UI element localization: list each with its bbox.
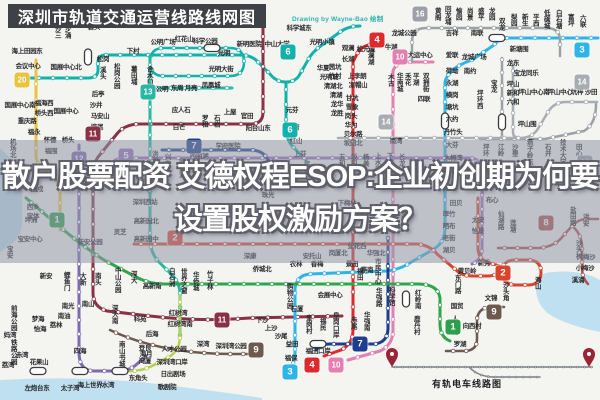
line-badge-3: 3 (283, 365, 298, 380)
line-badge-7: 7 (353, 337, 368, 352)
map-credit: Drawing by Wayne-Bao 绘制 (292, 13, 383, 23)
line-badge-13: 13 (141, 85, 156, 100)
metro-map-screenshot: 海上田园东沙三步涌碧头公明北长春路松岗下村溪头松岗公园薯田埔合水口后亭沙井马安山… (0, 0, 600, 400)
line-badge-2: 2 (496, 266, 511, 281)
map-title-banner: 深圳市轨道交通运营线路线网图 (8, 4, 266, 28)
line-badge-9: 9 (487, 305, 502, 320)
line-badge-6: 6 (283, 123, 298, 138)
line-badge-10: 10 (329, 358, 344, 373)
line-badge-6: 6 (281, 45, 296, 60)
line-badge-16: 16 (413, 7, 428, 22)
line-badge-4: 4 (370, 33, 385, 48)
headline-overlay-band (0, 140, 600, 263)
line-badge-1: 1 (446, 320, 461, 335)
line-badge-14: 14 (379, 115, 394, 130)
headline-line-2: 设置股权激励方案？ (0, 203, 600, 238)
headline-line-1: 散户股票配资 艾德权程ESOP:企业初创期为何要 (0, 160, 600, 195)
line-badge-10: 10 (393, 50, 408, 65)
tram-inset-title: 有轨电车线路图 (432, 377, 502, 390)
line-badge-14: 14 (575, 75, 590, 90)
line-badge-11: 11 (215, 313, 230, 328)
line-badge-9: 9 (249, 343, 264, 358)
line-badge-20: 20 (15, 73, 30, 88)
line-badge-4: 4 (305, 358, 320, 373)
line-badge-3: 3 (575, 43, 590, 58)
